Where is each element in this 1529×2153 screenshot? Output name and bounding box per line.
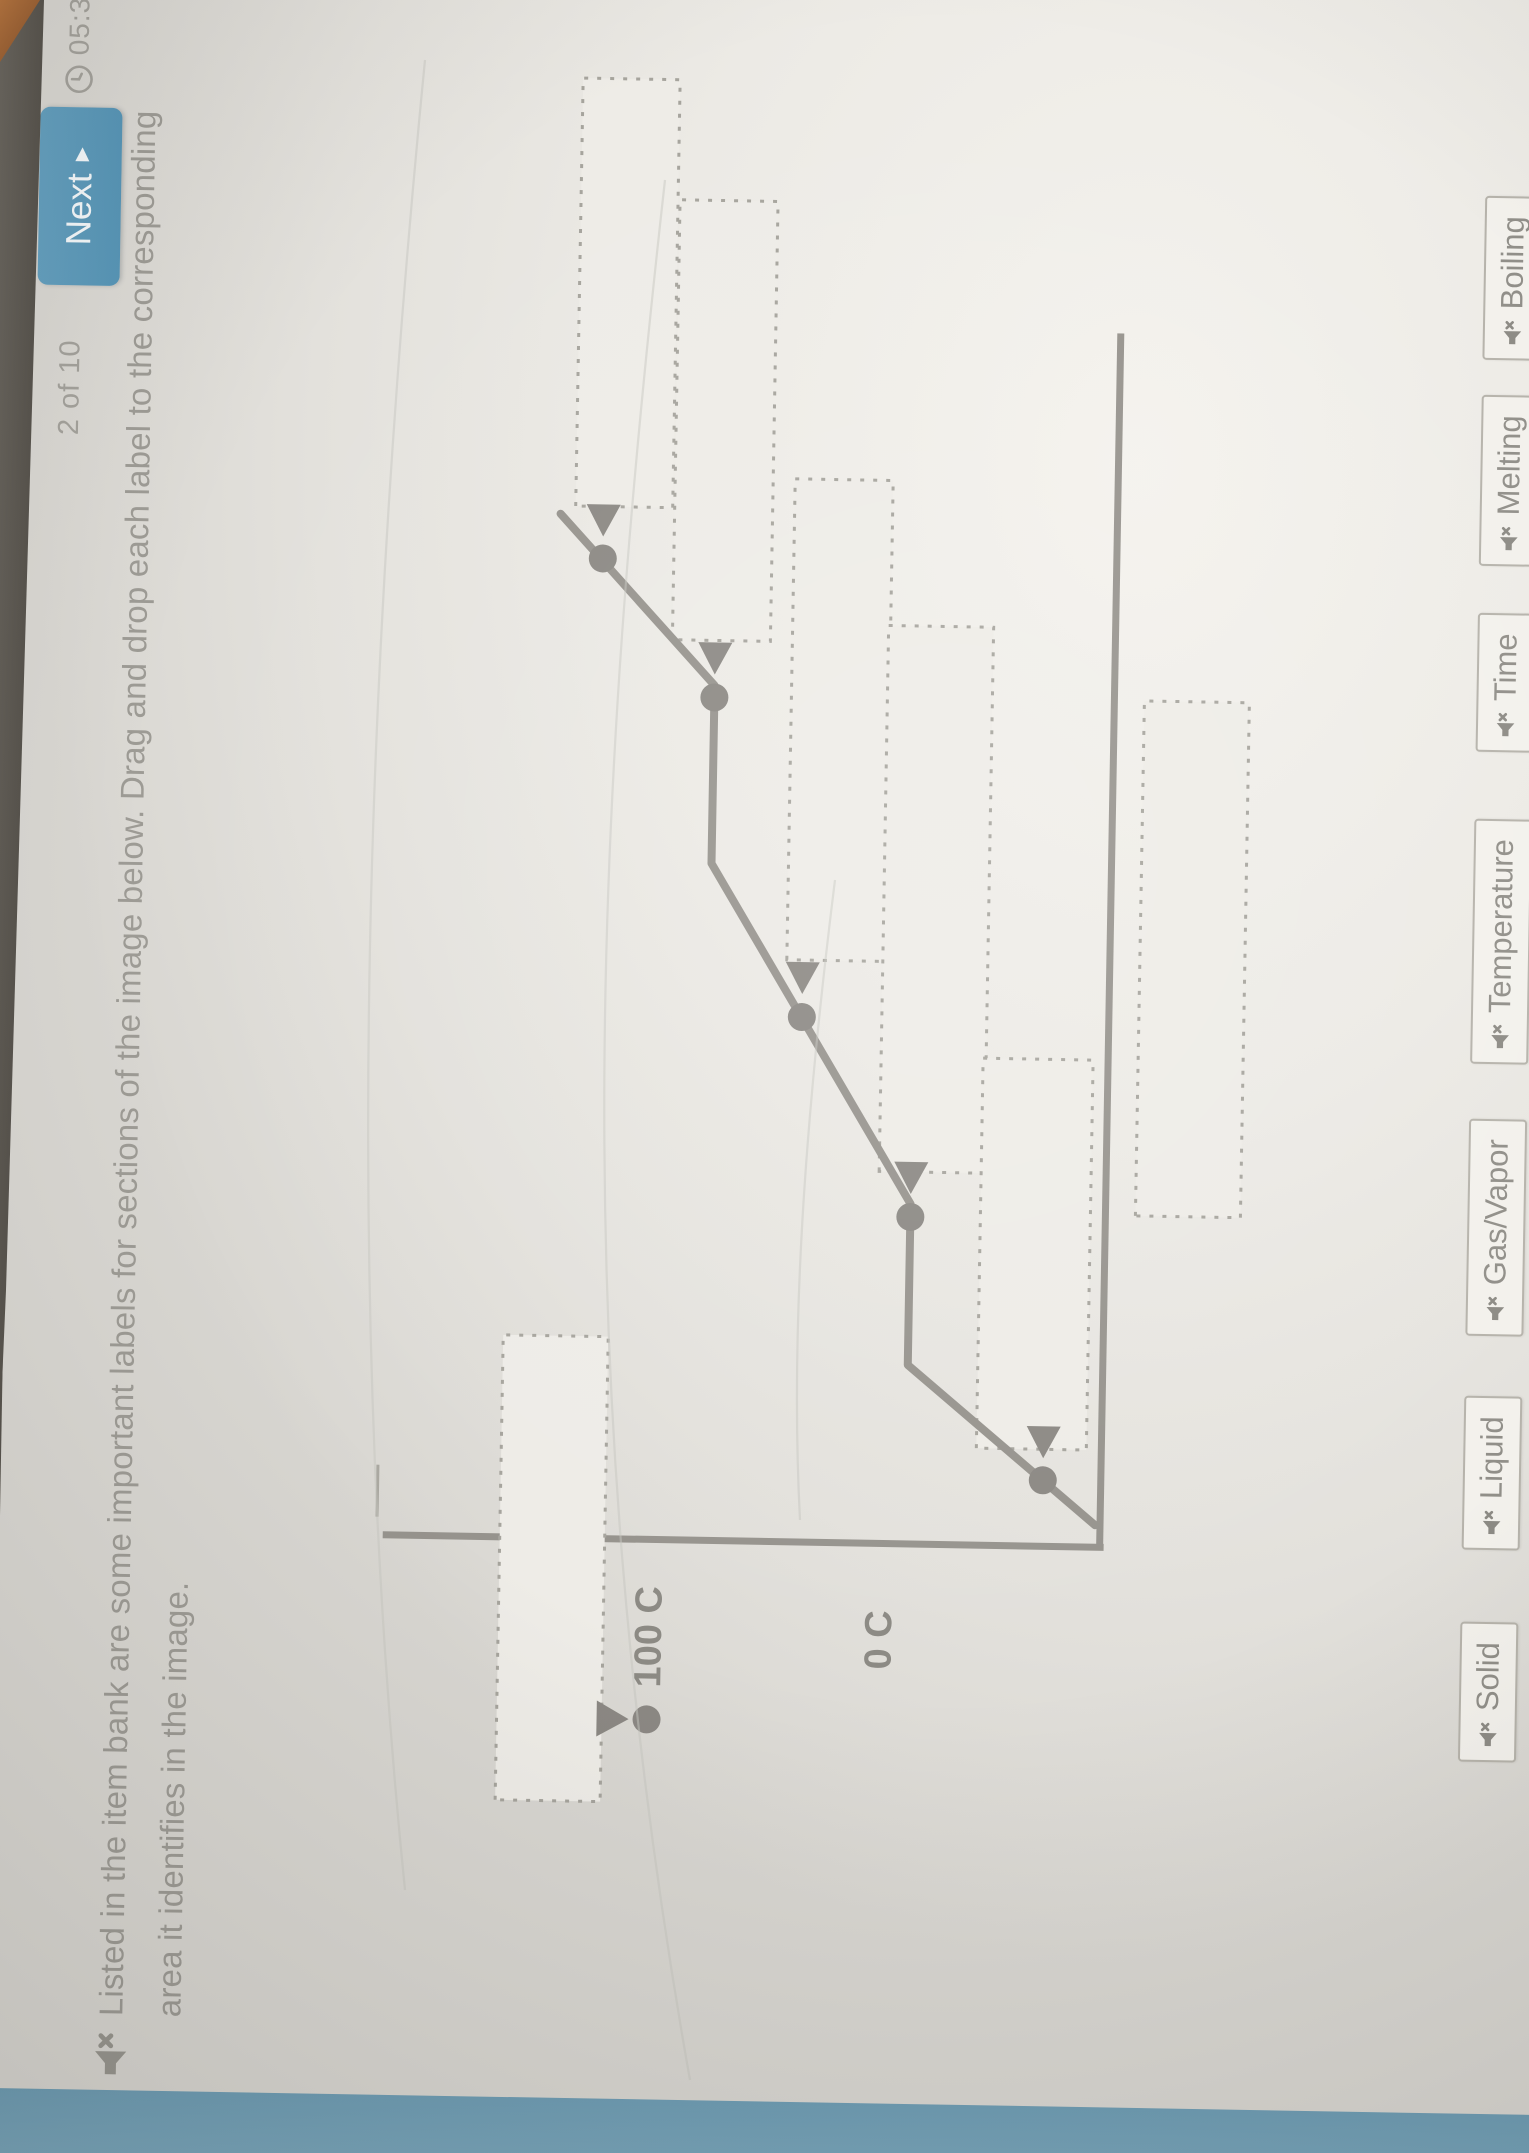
chip-label: Melting (1491, 415, 1529, 516)
temp-label-1: 100 C (627, 1586, 671, 1688)
item-bank-chip[interactable]: Time (1476, 613, 1529, 753)
speaker-muted-icon (1492, 711, 1517, 738)
drop-zone-7[interactable] (1135, 701, 1249, 1218)
speaker-muted-icon (1482, 1295, 1507, 1322)
chip-label: Time (1487, 633, 1524, 701)
heating-curve-figure: 100 C0 C (0, 0, 1529, 2153)
zone-pointer-arrow-2 (586, 504, 621, 537)
photo-canvas: 2 of 10 Next ▸ 05:32 Listed in the item … (0, 0, 1529, 2153)
item-bank-chip[interactable]: Liquid (1462, 1396, 1523, 1551)
temp-label-2: 0 C (857, 1610, 900, 1670)
drop-zone-2[interactable] (576, 78, 680, 508)
zone-pointer-arrow-1 (596, 1701, 629, 1738)
item-bank-chip[interactable]: Gas/Vapor (1465, 1119, 1527, 1337)
speaker-muted-icon (1478, 1509, 1503, 1536)
time-axis (1100, 333, 1121, 1550)
chip-label: Gas/Vapor (1477, 1139, 1516, 1285)
zone-pointer-arrow-4 (785, 962, 820, 995)
drop-zone-3[interactable] (672, 200, 778, 642)
drop-zone-4[interactable] (787, 479, 893, 962)
speaker-muted-icon (1475, 1721, 1500, 1748)
chip-label: Temperature (1482, 839, 1521, 1014)
curve-anchor-dot-5 (896, 1203, 924, 1231)
drop-zone-6[interactable] (976, 1058, 1093, 1450)
speaker-muted-icon (1499, 319, 1524, 346)
item-bank-chip[interactable]: Temperature (1470, 819, 1529, 1065)
drop-zone-5[interactable] (879, 625, 994, 1173)
speaker-muted-icon (1496, 525, 1521, 552)
chip-label: Liquid (1474, 1416, 1511, 1499)
drop-zone-1[interactable] (495, 1335, 608, 1802)
curve-anchor-dot-3 (700, 683, 728, 711)
curve-anchor-dot-1 (632, 1705, 660, 1733)
chip-label: Solid (1470, 1642, 1507, 1712)
quiz-screen: 2 of 10 Next ▸ 05:32 Listed in the item … (0, 0, 1529, 2153)
item-bank-chip[interactable]: Melting (1479, 395, 1529, 567)
chip-label: Boiling (1494, 216, 1529, 310)
speaker-muted-icon (1487, 1023, 1512, 1050)
axis-top-tick (377, 1465, 378, 1517)
temperature-axis (383, 1535, 1104, 1548)
item-bank-chip[interactable]: Solid (1458, 1622, 1518, 1763)
item-bank-chip[interactable]: Boiling (1482, 196, 1529, 361)
